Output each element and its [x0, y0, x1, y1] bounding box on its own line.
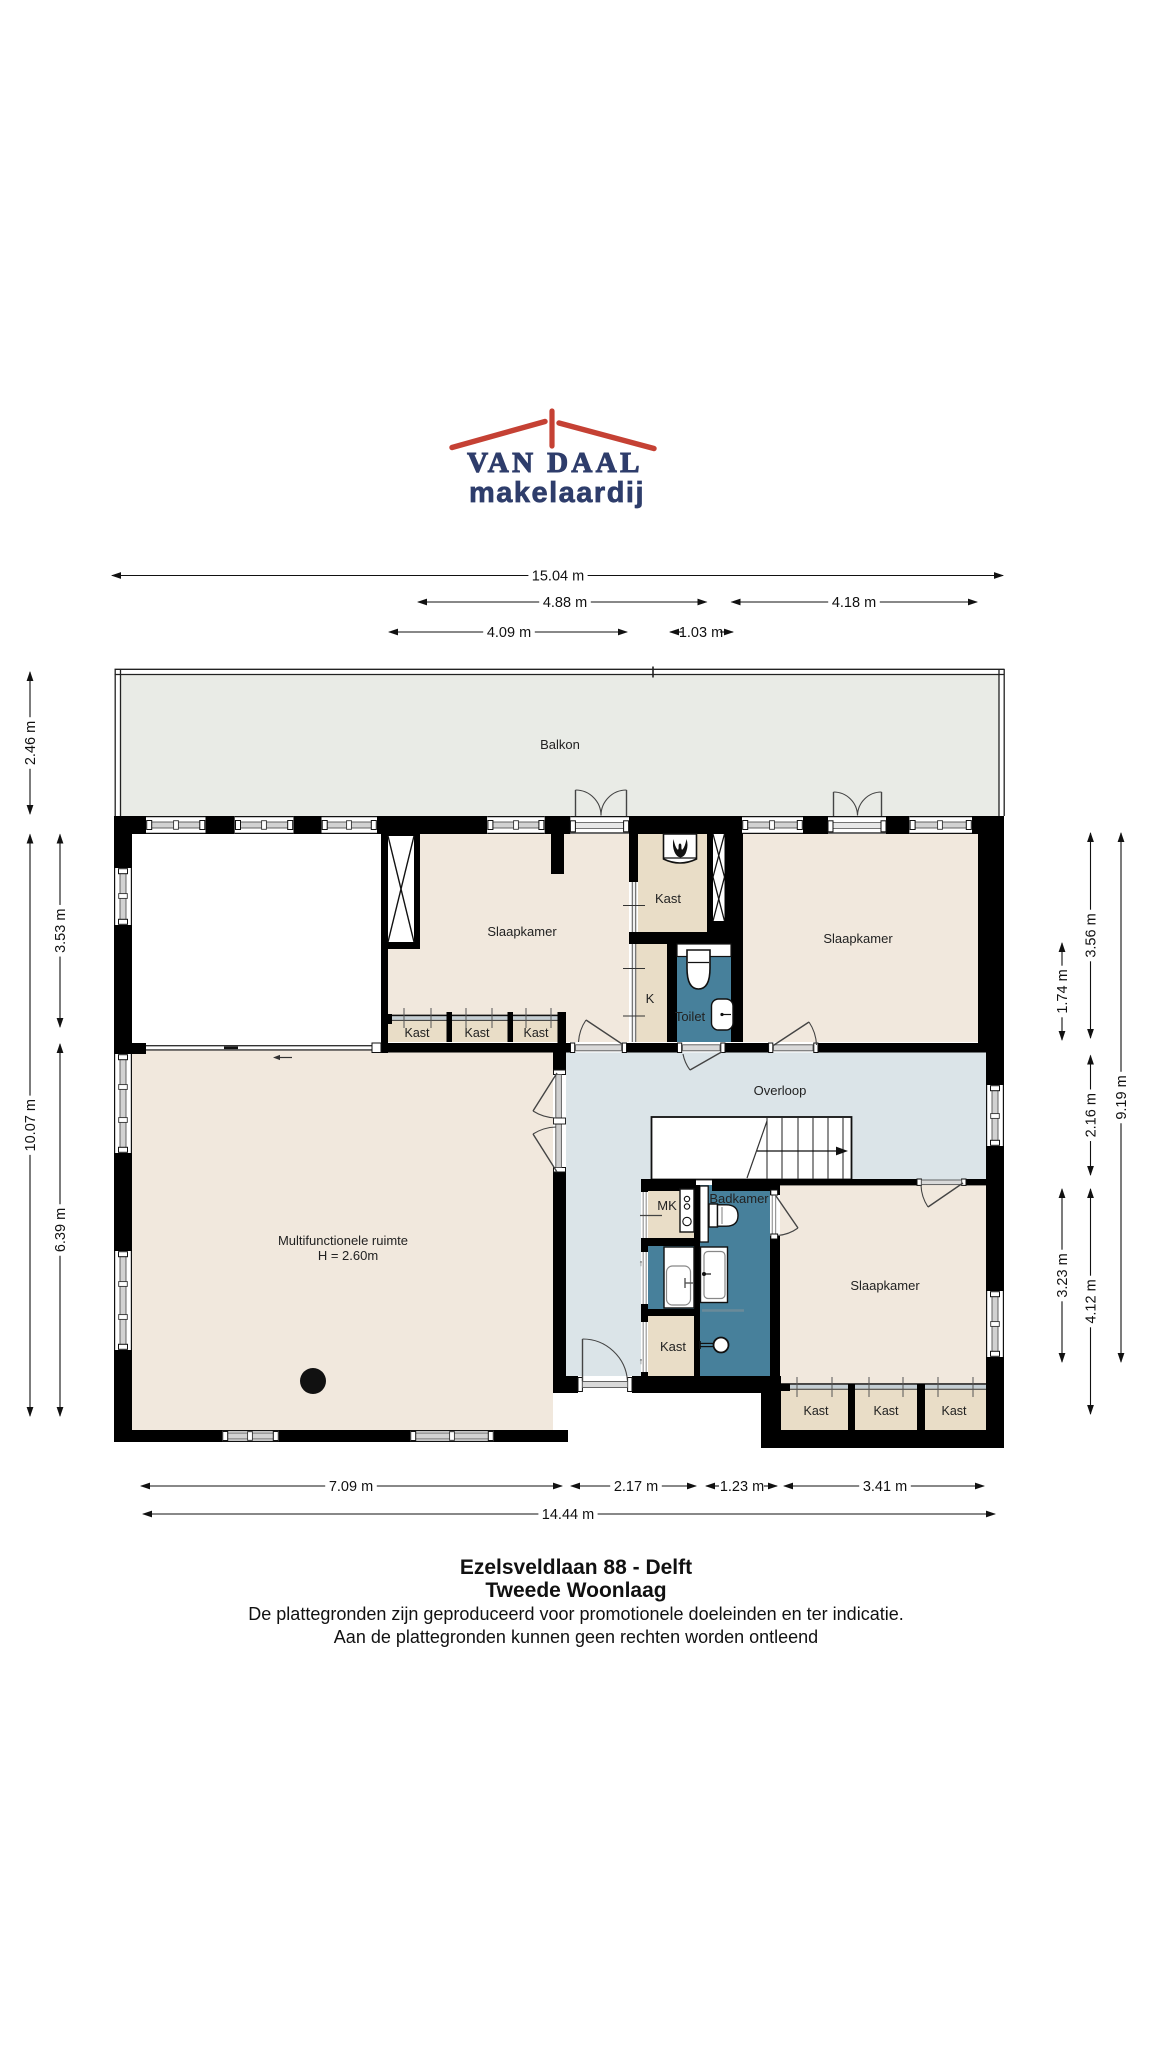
svg-text:3.53 m: 3.53 m	[53, 909, 69, 953]
svg-text:Kast: Kast	[873, 1404, 899, 1418]
svg-text:15.04 m: 15.04 m	[532, 568, 584, 584]
svg-text:Badkamer: Badkamer	[709, 1191, 769, 1206]
svg-text:Multifunctionele ruimte: Multifunctionele ruimte	[278, 1233, 408, 1248]
svg-text:Toilet: Toilet	[675, 1009, 706, 1024]
svg-text:De plattegronden zijn geproduc: De plattegronden zijn geproduceerd voor …	[248, 1604, 903, 1624]
svg-text:3.56 m: 3.56 m	[1084, 913, 1100, 957]
svg-text:Slaapkamer: Slaapkamer	[850, 1278, 920, 1293]
svg-text:Overloop: Overloop	[754, 1083, 807, 1098]
svg-text:H = 2.60m: H = 2.60m	[318, 1248, 378, 1263]
svg-text:Kast: Kast	[660, 1339, 686, 1354]
svg-text:2.46 m: 2.46 m	[23, 721, 39, 765]
svg-text:Kast: Kast	[941, 1404, 967, 1418]
svg-text:3.41 m: 3.41 m	[863, 1479, 907, 1495]
svg-text:14.44 m: 14.44 m	[542, 1507, 594, 1523]
svg-text:Aan de plattegronden kunnen ge: Aan de plattegronden kunnen geen rechten…	[334, 1627, 818, 1647]
svg-text:Kast: Kast	[655, 891, 681, 906]
svg-text:1.03 m: 1.03 m	[679, 625, 723, 641]
svg-text:3.23 m: 3.23 m	[1055, 1253, 1071, 1297]
svg-text:↑: ↑	[639, 1356, 644, 1366]
svg-text:Tweede Woonlaag: Tweede Woonlaag	[485, 1579, 666, 1602]
svg-text:4.88 m: 4.88 m	[543, 595, 587, 611]
svg-text:4.09 m: 4.09 m	[487, 625, 531, 641]
svg-text:Balkon: Balkon	[540, 737, 580, 752]
svg-text:Slaapkamer: Slaapkamer	[823, 931, 893, 946]
svg-text:1.74 m: 1.74 m	[1055, 969, 1071, 1013]
svg-text:7.09 m: 7.09 m	[329, 1479, 373, 1495]
svg-text:2.16 m: 2.16 m	[1084, 1093, 1100, 1137]
svg-text:4.18 m: 4.18 m	[832, 595, 876, 611]
svg-text:↑: ↑	[639, 1258, 644, 1268]
svg-text:Kast: Kast	[404, 1026, 430, 1040]
svg-text:Ezelsveldlaan 88 - Delft: Ezelsveldlaan 88 - Delft	[460, 1556, 692, 1579]
svg-text:Slaapkamer: Slaapkamer	[487, 924, 557, 939]
svg-text:K: K	[646, 991, 655, 1006]
svg-text:6.39 m: 6.39 m	[53, 1208, 69, 1252]
svg-text:1.23 m: 1.23 m	[720, 1479, 764, 1495]
svg-text:MK: MK	[657, 1198, 677, 1213]
svg-text:VAN DAAL: VAN DAAL	[467, 447, 643, 479]
svg-text:9.19 m: 9.19 m	[1114, 1075, 1130, 1119]
svg-text:10.07 m: 10.07 m	[23, 1099, 39, 1151]
svg-text:makelaardij: makelaardij	[469, 477, 645, 509]
svg-text:Kast: Kast	[464, 1026, 490, 1040]
svg-text:2.17 m: 2.17 m	[614, 1479, 658, 1495]
svg-text:Kast: Kast	[803, 1404, 829, 1418]
svg-text:Kast: Kast	[523, 1026, 549, 1040]
svg-text:4.12 m: 4.12 m	[1084, 1279, 1100, 1323]
